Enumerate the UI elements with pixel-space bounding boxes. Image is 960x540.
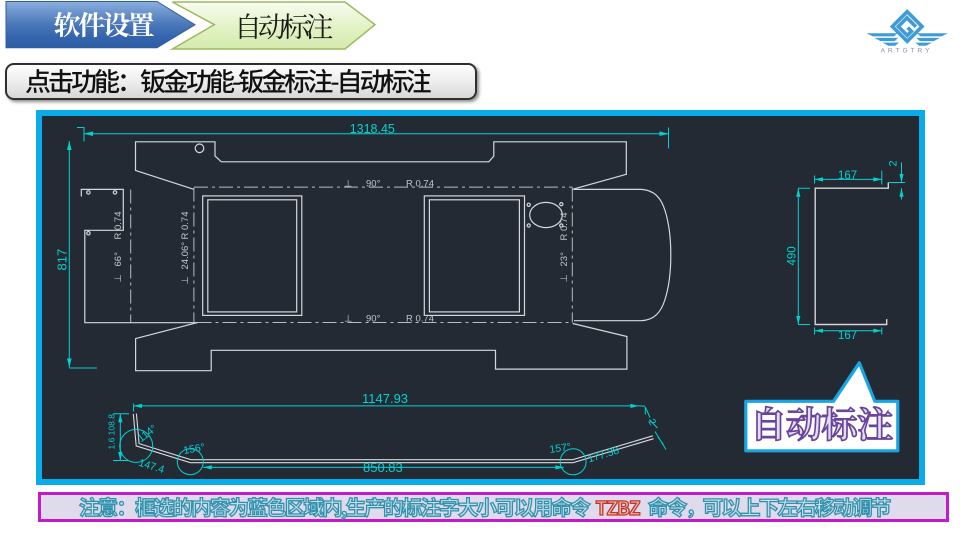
svg-text:R 0.74: R 0.74 (559, 212, 570, 240)
svg-text:90°: 90° (366, 313, 381, 324)
svg-text:2: 2 (888, 160, 900, 166)
svg-text:167: 167 (838, 170, 857, 182)
svg-text:R 0.74: R 0.74 (180, 211, 191, 239)
svg-text:156°: 156° (182, 441, 205, 457)
svg-text:490: 490 (787, 246, 799, 265)
svg-text:23°: 23° (559, 251, 570, 266)
svg-text:⊥: ⊥ (113, 274, 124, 282)
svg-text:1318.45: 1318.45 (350, 122, 395, 136)
svg-text:157°: 157° (549, 441, 572, 456)
svg-text:1147.93: 1147.93 (362, 391, 408, 406)
svg-text:24.06°: 24.06° (180, 241, 191, 269)
svg-text:R 0.74: R 0.74 (406, 178, 434, 189)
svg-text:147.4: 147.4 (137, 456, 166, 475)
svg-text:167: 167 (838, 330, 857, 342)
svg-text:66°: 66° (113, 251, 124, 266)
svg-text:1.6 108.8: 1.6 108.8 (107, 413, 117, 449)
svg-text:817: 817 (55, 248, 70, 270)
svg-text:R 0.74: R 0.74 (406, 313, 434, 324)
svg-text:90°: 90° (366, 178, 381, 189)
svg-text:R 0.74: R 0.74 (113, 211, 124, 239)
svg-text:177.38: 177.38 (586, 444, 620, 465)
svg-text:ARTGTRY: ARTGTRY (881, 48, 933, 55)
svg-text:⊥: ⊥ (559, 274, 570, 282)
svg-text:⊥: ⊥ (344, 178, 352, 189)
svg-text:⊥: ⊥ (344, 313, 352, 324)
svg-text:⊥: ⊥ (180, 276, 191, 284)
svg-text:114°: 114° (135, 422, 159, 444)
svg-text:850.83: 850.83 (363, 460, 403, 475)
